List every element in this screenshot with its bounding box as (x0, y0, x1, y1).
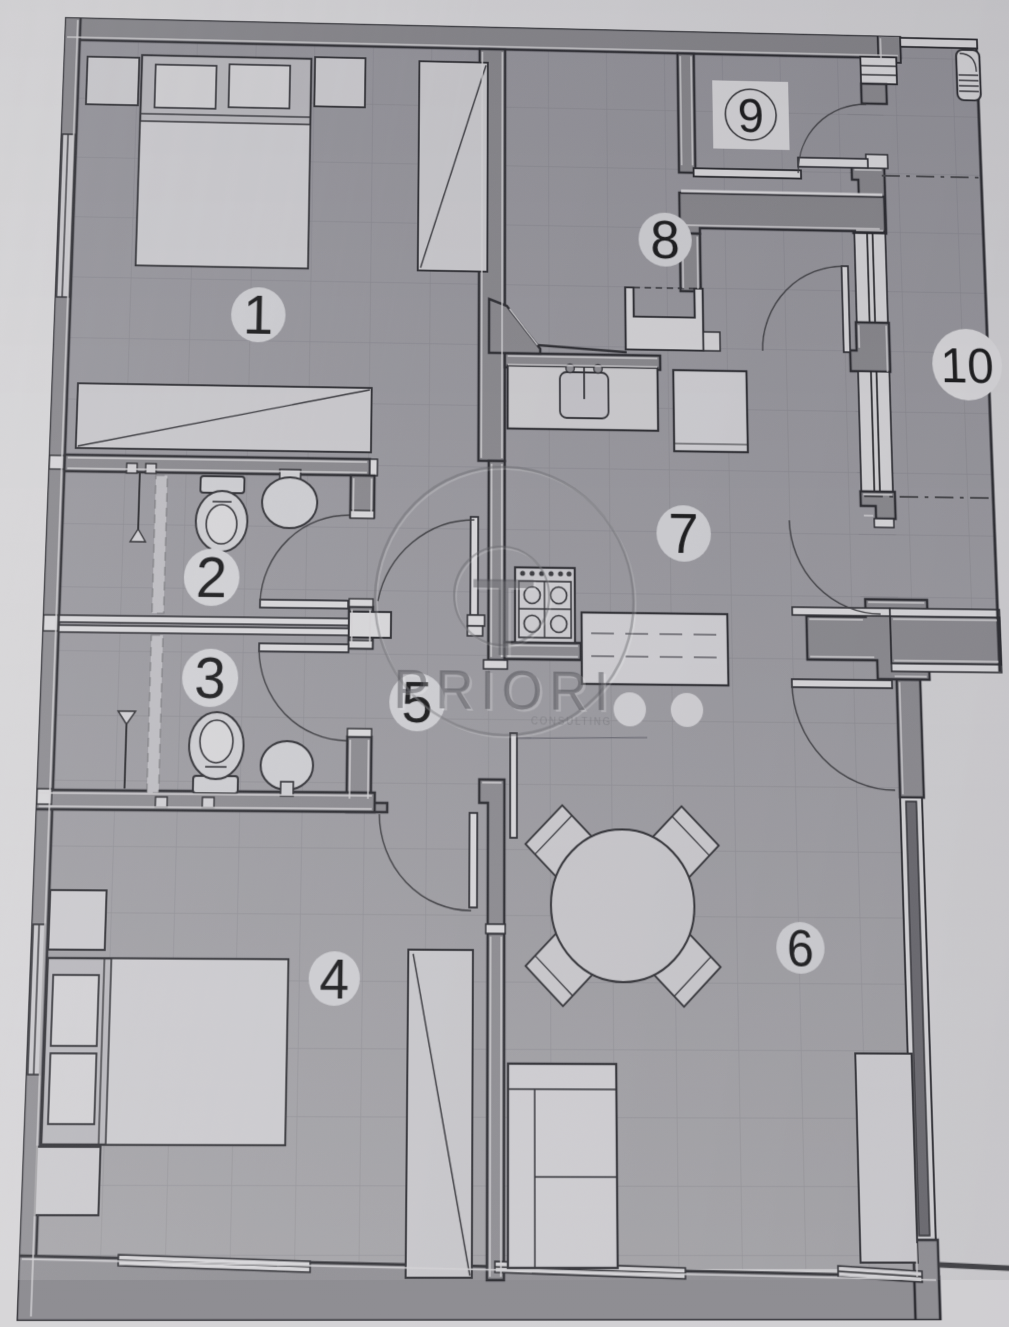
svg-text:4: 4 (319, 948, 349, 1011)
svg-text:1: 1 (243, 285, 275, 347)
svg-text:6: 6 (786, 920, 814, 978)
svg-text:2: 2 (195, 546, 227, 610)
svg-text:8: 8 (650, 210, 680, 270)
svg-text:3: 3 (194, 646, 227, 711)
svg-text:10: 10 (940, 339, 995, 394)
svg-text:9: 9 (737, 90, 764, 143)
svg-text:CONSULTING: CONSULTING (531, 716, 612, 728)
svg-text:7: 7 (668, 503, 699, 566)
svg-text:PRIORI: PRIORI (393, 658, 615, 723)
